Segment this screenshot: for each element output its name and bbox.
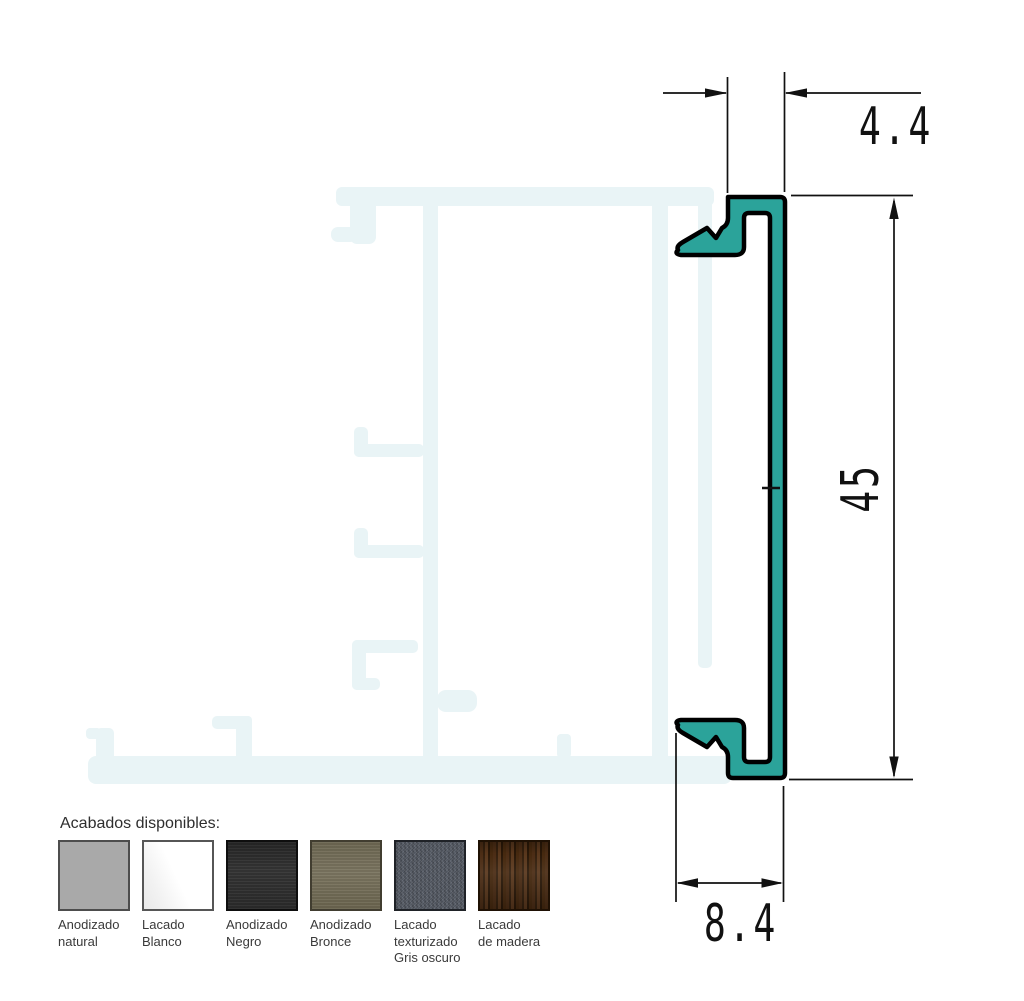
- swatch-anodizado-bronce: Anodizado Bronce: [310, 840, 382, 967]
- swatch-label: Lacado texturizado Gris oscuro: [394, 917, 466, 967]
- swatch-label-line: Lacado: [394, 917, 466, 934]
- swatch-label-line: de madera: [478, 934, 550, 951]
- finishes-section: Acabados disponibles: Anodizado natural …: [58, 815, 618, 967]
- dimension-bottom-width: 8.4: [698, 898, 785, 950]
- arrow-bottom-right: [762, 878, 784, 887]
- swatch-lacado-texturizado-gris-oscuro: Lacado texturizado Gris oscuro: [394, 840, 466, 967]
- swatch-label-line: Anodizado: [58, 917, 130, 934]
- swatch-label-line: Anodizado: [310, 917, 382, 934]
- swatch-label: Anodizado Negro: [226, 917, 298, 950]
- arrow-top-right: [785, 88, 808, 97]
- swatch-lacado-blanco: Lacado Blanco: [142, 840, 214, 967]
- swatch-tile-lacado-texturizado: [394, 840, 466, 911]
- swatch-label-line: Gris oscuro: [394, 950, 466, 967]
- swatch-tile-anodizado-natural: [58, 840, 130, 911]
- swatch-lacado-de-madera: Lacado de madera: [478, 840, 550, 967]
- swatch-row: Anodizado natural Lacado Blanco Anodizad…: [58, 840, 618, 967]
- swatch-tile-lacado-de-madera: [478, 840, 550, 911]
- swatch-tile-anodizado-negro: [226, 840, 298, 911]
- technical-drawing-page: 4.4 45 8.4 Acabados disponibles: Anodiza…: [0, 0, 1024, 1001]
- swatch-label-line: texturizado: [394, 934, 466, 951]
- watermark-frame-profile: [86, 187, 732, 784]
- swatch-label-line: Negro: [226, 934, 298, 951]
- dimension-height: 45: [832, 445, 890, 532]
- swatch-label-line: natural: [58, 934, 130, 951]
- swatch-label-line: Anodizado: [226, 917, 298, 934]
- swatch-label-line: Bronce: [310, 934, 382, 951]
- swatch-label-line: Lacado: [142, 917, 214, 934]
- dimension-top-width: 4.4: [853, 101, 940, 153]
- swatch-label: Lacado Blanco: [142, 917, 214, 950]
- swatch-anodizado-natural: Anodizado natural: [58, 840, 130, 967]
- swatch-label: Anodizado natural: [58, 917, 130, 950]
- swatch-tile-lacado-blanco: [142, 840, 214, 911]
- finishes-heading: Acabados disponibles:: [60, 815, 618, 833]
- swatch-label: Anodizado Bronce: [310, 917, 382, 950]
- arrow-top-left: [705, 88, 728, 97]
- swatch-label: Lacado de madera: [478, 917, 550, 950]
- swatch-anodizado-negro: Anodizado Negro: [226, 840, 298, 967]
- swatch-label-line: Blanco: [142, 934, 214, 951]
- arrow-height-up: [889, 198, 898, 220]
- swatch-label-line: Lacado: [478, 917, 550, 934]
- arrow-bottom-left: [677, 878, 699, 887]
- swatch-tile-anodizado-bronce: [310, 840, 382, 911]
- arrow-height-down: [889, 757, 898, 779]
